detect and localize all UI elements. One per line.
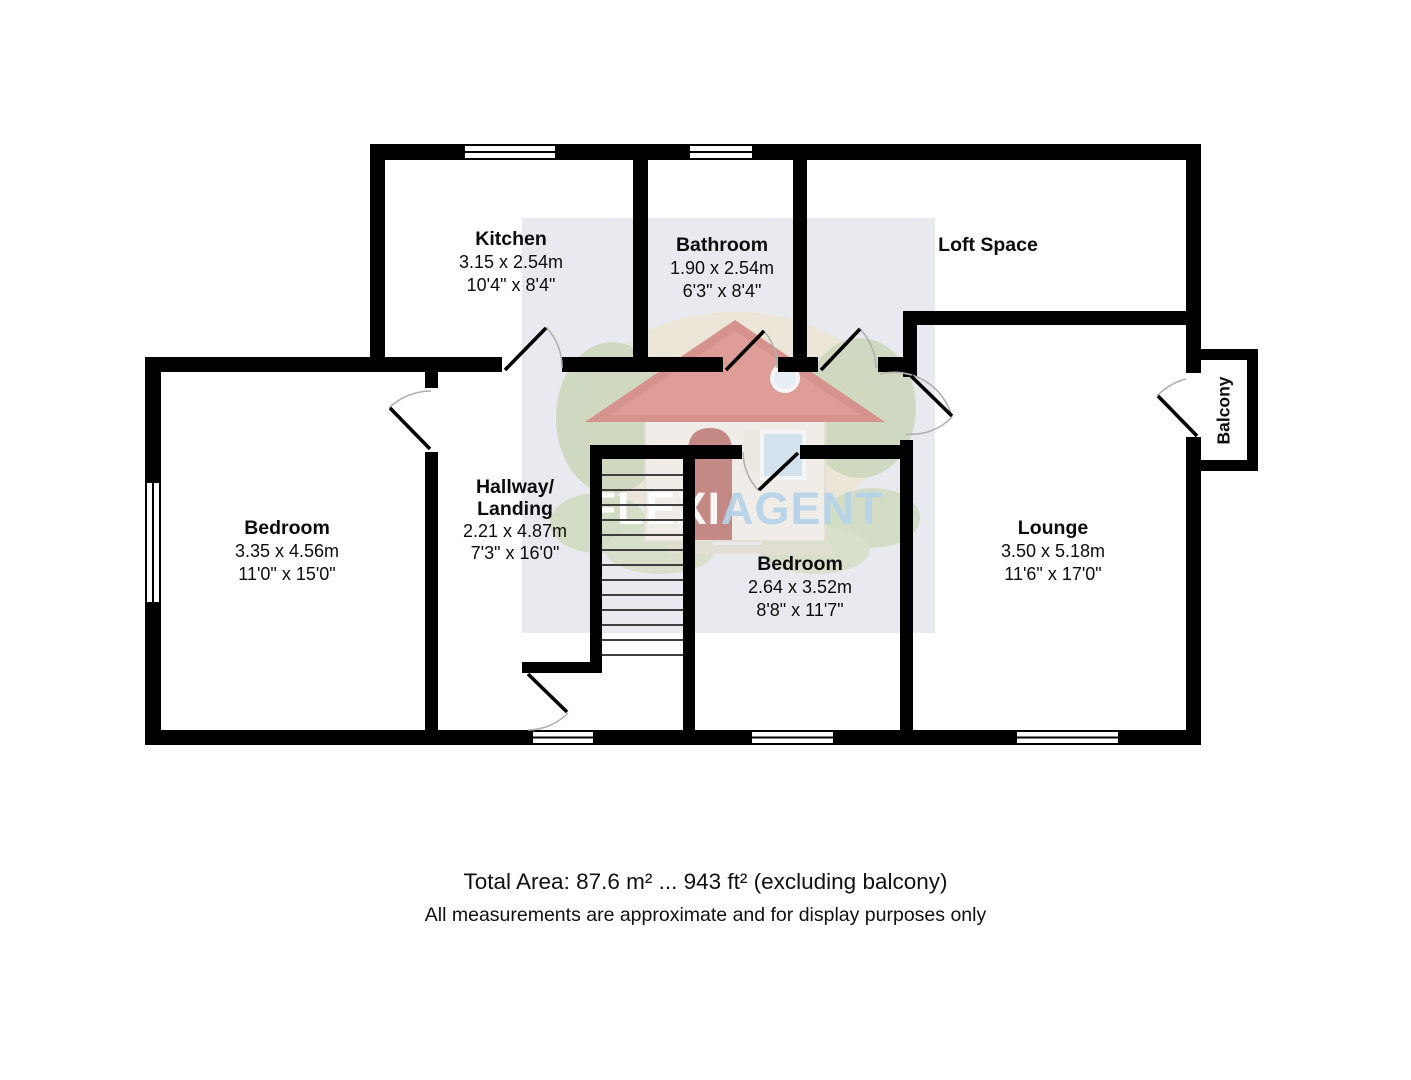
room-dim-m: 3.35 x 4.56m — [177, 540, 397, 563]
room-name: Hallway/ — [405, 476, 625, 498]
room-name: Lounge — [943, 517, 1163, 540]
room-name: Bedroom — [177, 517, 397, 540]
door-leaf — [759, 453, 798, 490]
room-dim-ft: 7'3" x 16'0" — [405, 542, 625, 564]
room-label-loft: Loft Space — [878, 234, 1098, 257]
door-leaf — [1158, 396, 1197, 436]
room-name: Balcony — [1214, 376, 1235, 444]
door-leaf — [821, 329, 860, 370]
door-arc — [389, 391, 431, 408]
door-leaf — [911, 376, 952, 416]
door-arc — [528, 713, 568, 730]
room-name: Bedroom — [690, 553, 910, 576]
room-dim-ft: 10'4" x 8'4" — [401, 274, 621, 297]
room-name: Kitchen — [401, 228, 621, 251]
door-leaf — [528, 674, 567, 712]
door-leaf — [726, 331, 764, 370]
room-dim-m: 2.64 x 3.52m — [690, 576, 910, 599]
floorplan: FLEXIAGENT — [0, 0, 1411, 1080]
room-dim-ft: 6'3" x 8'4" — [612, 280, 832, 303]
room-dim-m: 3.50 x 5.18m — [943, 540, 1163, 563]
room-name: Bathroom — [612, 234, 832, 257]
room-dim-m: 1.90 x 2.54m — [612, 257, 832, 280]
door-leaf — [505, 328, 546, 370]
room-dim-m: 3.15 x 2.54m — [401, 251, 621, 274]
room-name: Landing — [405, 498, 625, 520]
total-area-text: Total Area: 87.6 m² ... 943 ft² (excludi… — [0, 869, 1411, 895]
room-label-hallway: Hallway/ Landing 2.21 x 4.87m 7'3" x 16'… — [405, 476, 625, 564]
door-arc — [743, 452, 759, 491]
room-name: Loft Space — [878, 234, 1098, 257]
room-dim-ft: 11'0" x 15'0" — [177, 563, 397, 586]
room-label-bedroom2: Bedroom 2.64 x 3.52m 8'8" x 11'7" — [690, 553, 910, 622]
room-label-bathroom: Bathroom 1.90 x 2.54m 6'3" x 8'4" — [612, 234, 832, 303]
door-arc — [546, 327, 562, 368]
door-arc — [859, 328, 876, 368]
room-label-kitchen: Kitchen 3.15 x 2.54m 10'4" x 8'4" — [401, 228, 621, 297]
room-dim-ft: 11'6" x 17'0" — [943, 563, 1163, 586]
door-arc — [906, 417, 952, 434]
door-arc — [1157, 379, 1186, 396]
room-label-bedroom1: Bedroom 3.35 x 4.56m 11'0" x 15'0" — [177, 517, 397, 586]
disclaimer-text: All measurements are approximate and for… — [0, 904, 1411, 927]
room-label-balcony: Balcony — [1201, 358, 1247, 462]
room-label-lounge: Lounge 3.50 x 5.18m 11'6" x 17'0" — [943, 517, 1163, 586]
room-dim-ft: 8'8" x 11'7" — [690, 599, 910, 622]
door-arc — [763, 330, 777, 368]
door-leaf — [390, 408, 430, 449]
room-dim-m: 2.21 x 4.87m — [405, 520, 625, 542]
